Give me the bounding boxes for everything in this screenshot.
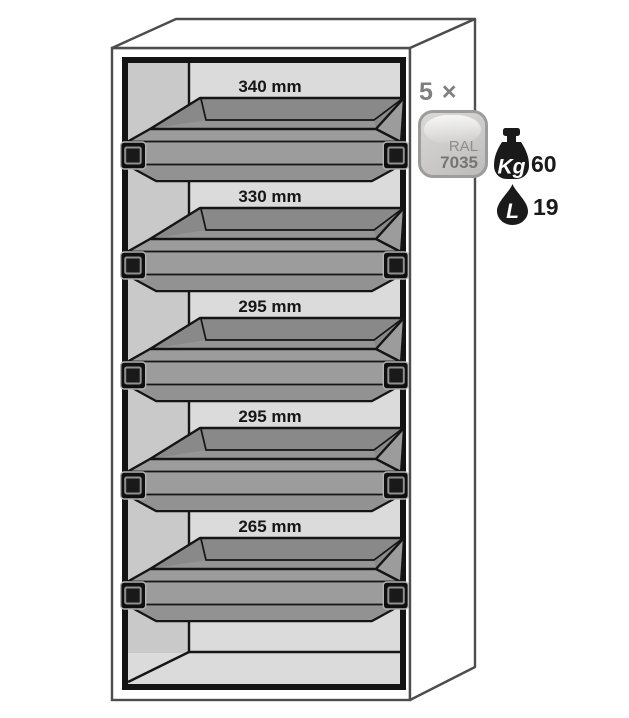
max-load-value: 60 (531, 152, 557, 176)
pullout-tray (120, 426, 409, 516)
volume-unit-label: L (506, 200, 519, 223)
drop-icon: L (497, 184, 528, 225)
cabinet-interior: 340 mm 330 mm 295 mm 295 mm 265 mm (128, 63, 400, 684)
ral-text: RAL 7035 (440, 139, 478, 171)
shelf-width-label: 295 mm (128, 298, 400, 316)
shelf-width-label: 330 mm (128, 188, 400, 206)
shelf-width-label: 295 mm (128, 408, 400, 426)
interior-floor (128, 652, 400, 684)
sump-volume-value: 19 (533, 195, 559, 219)
pullout-tray (120, 536, 409, 626)
weight-unit-label: Kg (498, 156, 526, 179)
pullout-tray (120, 316, 409, 406)
cabinet-opening-frame: 340 mm 330 mm 295 mm 295 mm 265 mm (122, 57, 406, 690)
cabinet-diagram: 340 mm 330 mm 295 mm 295 mm 265 mm 5 × R… (0, 0, 629, 718)
weight-icon: Kg (494, 128, 529, 179)
ral-code: 7035 (440, 154, 478, 171)
ral-prefix: RAL (440, 139, 478, 154)
ral-color-swatch: RAL 7035 (418, 110, 488, 178)
pullout-tray (120, 206, 409, 296)
shelf-width-label: 340 mm (128, 78, 400, 96)
pullout-tray (120, 96, 409, 186)
shelf-width-label: 265 mm (128, 518, 400, 536)
quantity-label: 5 × (419, 80, 457, 105)
